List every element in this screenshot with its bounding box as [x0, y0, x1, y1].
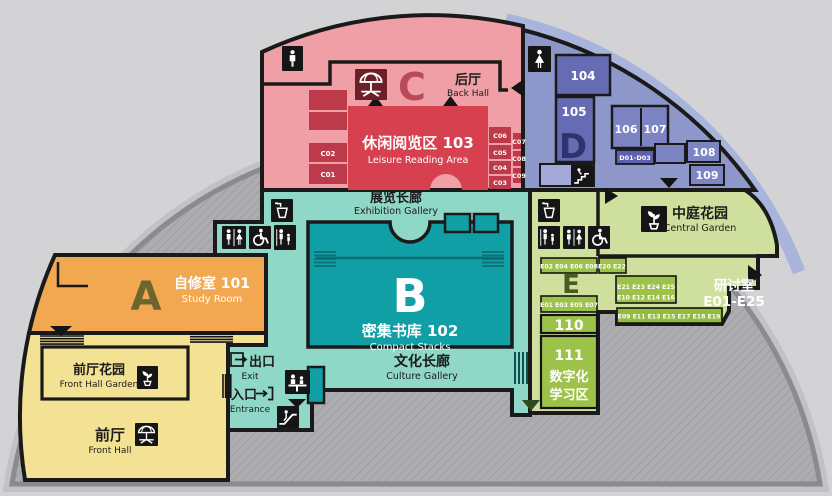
- room-label: 109: [696, 169, 719, 182]
- room-label: C08: [512, 155, 526, 163]
- room-label: 104: [570, 69, 595, 83]
- study-en: Study Room: [182, 294, 243, 305]
- zone-letter-e: E: [562, 270, 580, 300]
- room-label: 111: [554, 348, 583, 364]
- entrance-cn: 入口: [231, 388, 257, 403]
- back-hall-cn: 后厅: [455, 72, 481, 88]
- room-label: E10 E12 E14 E16: [617, 295, 675, 302]
- room-label: 108: [693, 146, 716, 159]
- room-label: 106: [615, 123, 638, 136]
- exit-cn: 出口: [249, 354, 275, 370]
- exhibition-cn: 展览长廊: [370, 190, 422, 206]
- culture-en: Culture Gallery: [386, 371, 458, 382]
- room-label: C07: [512, 138, 526, 146]
- room-label: 110: [554, 318, 583, 334]
- room-label: E09 E11 E13 E15 E17 E18 E19: [618, 314, 721, 321]
- room-d-unlabeled: [655, 144, 685, 163]
- room-label: 107: [644, 123, 667, 136]
- room-label: C09: [512, 172, 526, 180]
- central-garden-cn: 中庭花园: [672, 205, 728, 222]
- entrance-en: Entrance: [230, 405, 271, 415]
- room-label: C04: [493, 164, 507, 172]
- seminar-cn: 研讨室: [714, 277, 755, 294]
- water-fountain-icon-left: [271, 199, 293, 222]
- sprout-icon-front-garden: [137, 366, 158, 389]
- zone-front-hall: [20, 326, 266, 480]
- exhibition-en: Exhibition Gallery: [354, 206, 438, 217]
- water-fountain-icon-right: [538, 199, 560, 222]
- wheelchair-icon-left: [249, 226, 271, 249]
- wheelchair-icon-right: [588, 226, 610, 249]
- central-garden-en: Central Garden: [664, 223, 736, 234]
- leisure-en: Leisure Reading Area: [368, 155, 469, 166]
- room-label: C05: [493, 149, 507, 157]
- restroom-icon-right: [563, 226, 585, 249]
- front-garden-cn: 前厅花园: [73, 362, 125, 378]
- restroom-icon-left: [222, 226, 246, 249]
- zone-letter-b: B: [392, 269, 427, 323]
- zone-letter-c: C: [398, 65, 426, 109]
- floor-plan-stage: C 后厅 Back Hall 休闲阅览区 103 Leisure Reading…: [0, 0, 832, 496]
- stacks-en: Compact Stacks: [370, 342, 451, 353]
- digital-area-line1: 数字化: [549, 369, 588, 385]
- corridor-tab-room: [308, 367, 324, 403]
- parasol-table-icon: [135, 423, 158, 446]
- escalator-icon: [277, 406, 299, 428]
- room-label: E20 E22: [598, 264, 626, 271]
- mens-restroom-icon: [282, 46, 303, 71]
- room-label: E21 E23 E24 E25: [617, 284, 675, 291]
- stacks-cn: 密集书库 102: [362, 322, 459, 340]
- digital-area-line2: 学习区: [549, 387, 588, 403]
- zone-letter-d: D: [559, 127, 587, 167]
- room-label: 105: [561, 105, 586, 119]
- room-label: E01 E03 E05 E07: [540, 302, 598, 309]
- stairs-icon: [571, 165, 593, 186]
- zone-letter-a: A: [131, 274, 162, 320]
- info-desk-icon: [285, 370, 310, 394]
- front-garden-en: Front Hall Garden: [60, 380, 139, 390]
- room-label: C02: [321, 150, 336, 158]
- room-label: C06: [493, 132, 507, 140]
- study-cn: 自修室 101: [174, 275, 250, 292]
- culture-cn: 文化长廊: [394, 353, 450, 370]
- floor-plan-svg: C 后厅 Back Hall 休闲阅览区 103 Leisure Reading…: [0, 0, 832, 496]
- room-label: C01: [321, 171, 336, 179]
- room-label: D01-D03: [619, 154, 651, 162]
- family-restroom-icon-right: [538, 226, 560, 249]
- front-hall-en: Front Hall: [89, 446, 132, 456]
- back-hall-en: Back Hall: [447, 89, 489, 99]
- room-label: C03: [493, 179, 507, 187]
- leisure-cn: 休闲阅览区 103: [361, 134, 474, 152]
- exit-en: Exit: [241, 372, 259, 382]
- pavilion-icon: [355, 69, 387, 100]
- room-label: E02 E04 E06 E08: [540, 264, 598, 271]
- family-restroom-icon-left: [274, 225, 296, 250]
- seminar-range: E01-E25: [703, 294, 765, 310]
- womens-restroom-icon: [528, 46, 551, 72]
- front-hall-cn: 前厅: [95, 426, 125, 444]
